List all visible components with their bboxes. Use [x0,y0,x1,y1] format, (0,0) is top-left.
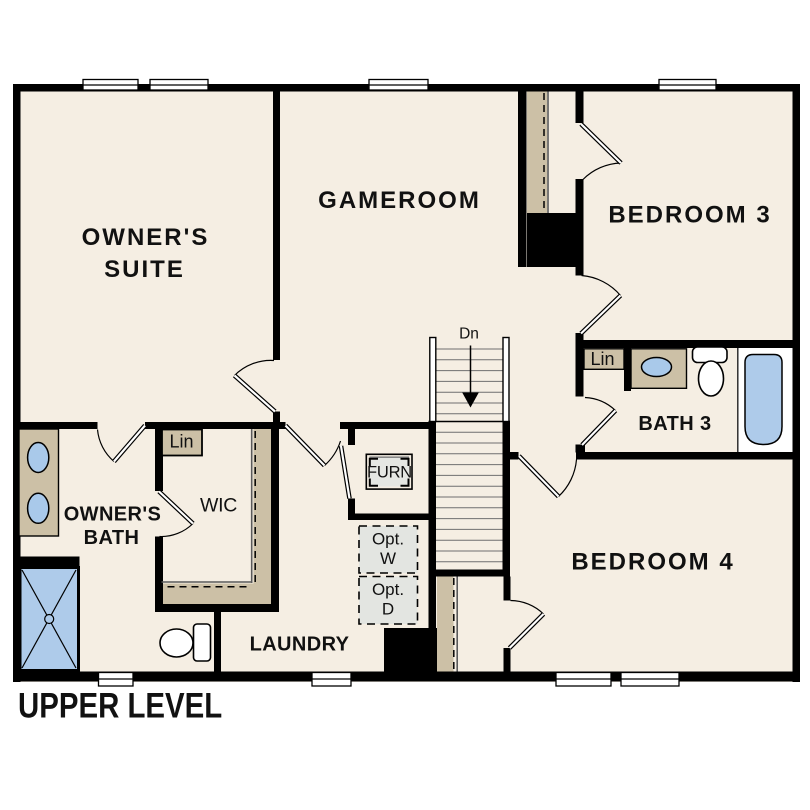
svg-text:GAMEROOM: GAMEROOM [318,187,481,214]
svg-text:W: W [380,549,396,568]
svg-text:Dn: Dn [459,326,479,343]
svg-text:BATH: BATH [84,527,140,549]
svg-text:OWNER'S: OWNER'S [64,504,162,526]
svg-text:SUITE: SUITE [104,256,185,283]
svg-text:BEDROOM 4: BEDROOM 4 [571,549,734,576]
svg-text:Opt.: Opt. [372,580,404,599]
svg-text:Lin: Lin [169,432,193,452]
svg-text:BATH 3: BATH 3 [638,413,711,435]
svg-text:OWNER'S: OWNER'S [82,224,210,251]
svg-text:FURN: FURN [367,463,412,481]
svg-text:WIC: WIC [200,495,237,517]
svg-text:Lin: Lin [590,349,614,369]
svg-text:UPPER LEVEL: UPPER LEVEL [18,686,222,725]
svg-text:BEDROOM 3: BEDROOM 3 [608,202,771,229]
svg-text:D: D [382,600,394,619]
svg-text:Opt.: Opt. [372,530,404,549]
svg-text:LAUNDRY: LAUNDRY [250,634,350,656]
